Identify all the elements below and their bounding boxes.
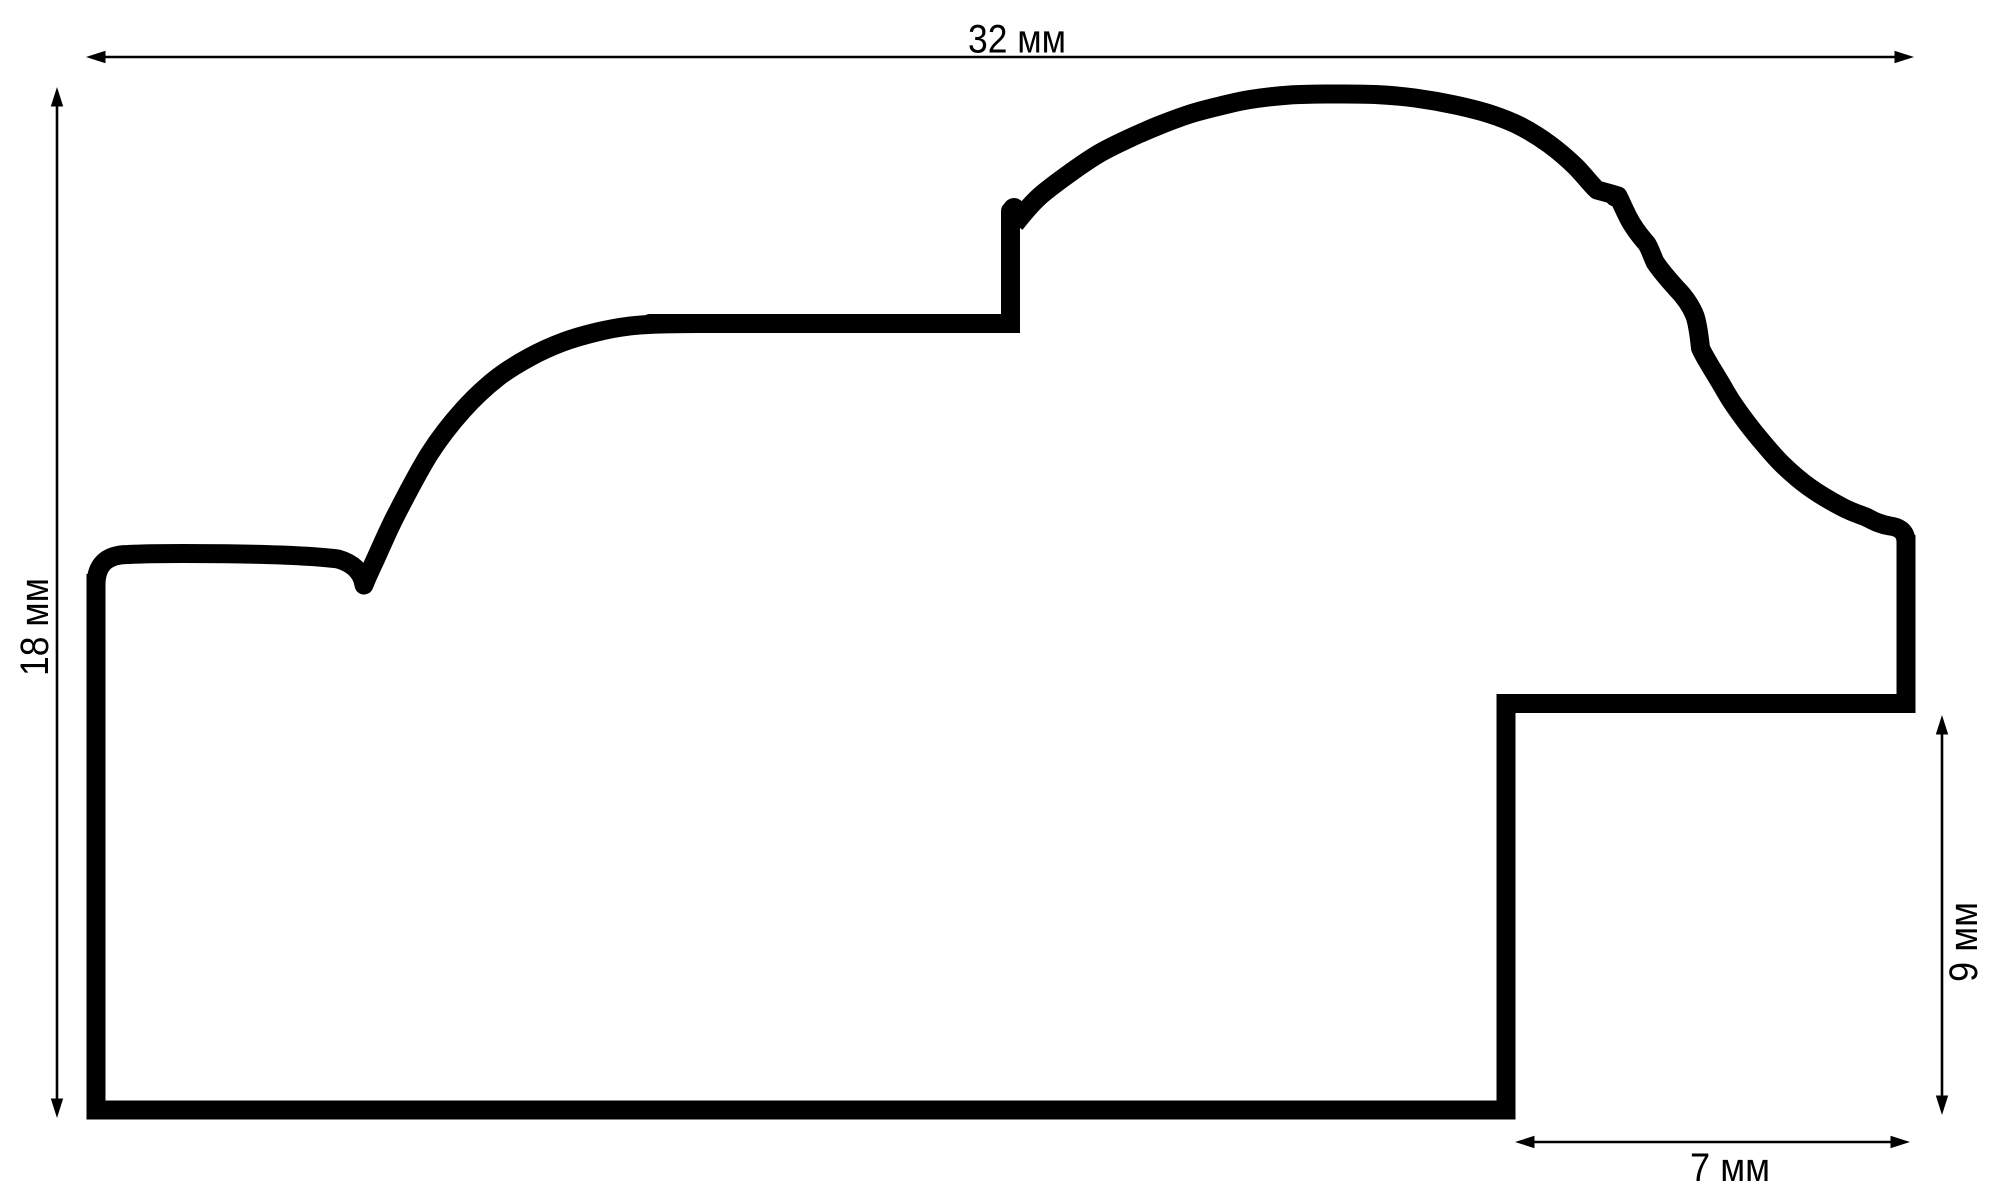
svg-text:32 мм: 32 мм <box>968 18 1066 62</box>
svg-text:18 мм: 18 мм <box>13 578 57 676</box>
svg-text:7 мм: 7 мм <box>1690 1146 1770 1190</box>
svg-text:9 мм: 9 мм <box>1942 902 1986 982</box>
